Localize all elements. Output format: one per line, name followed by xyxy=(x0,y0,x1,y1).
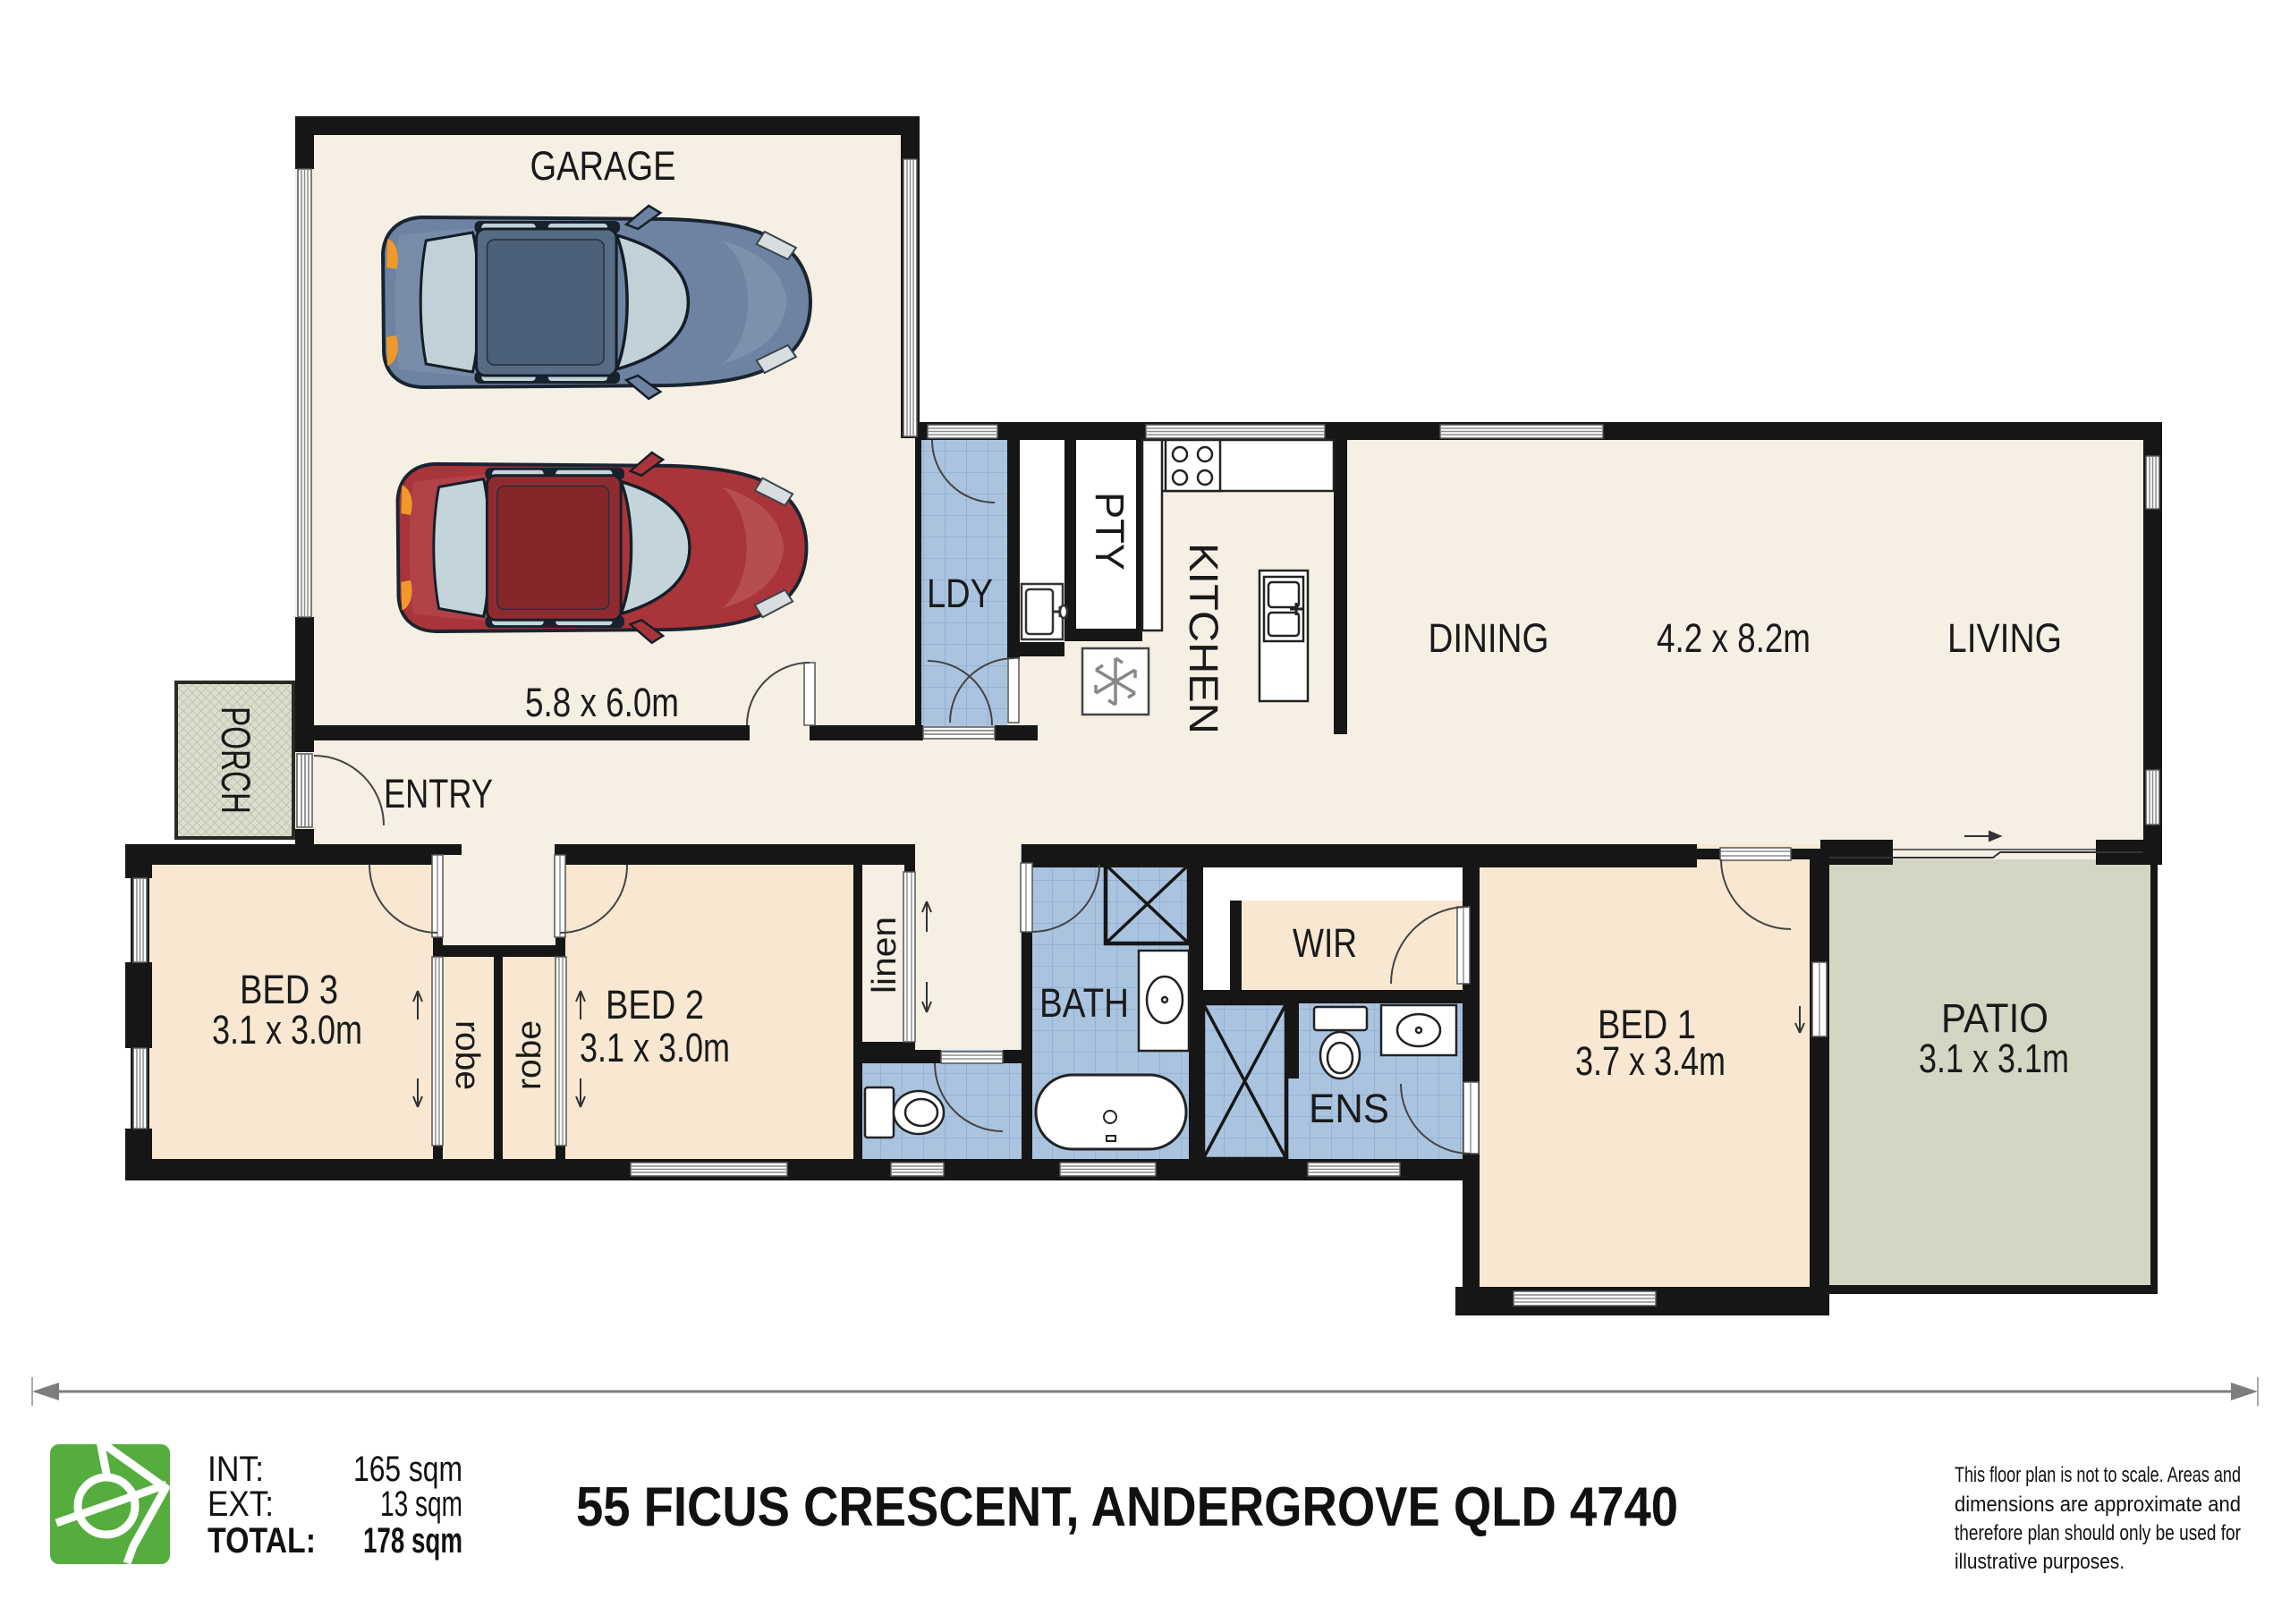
svg-text:LDY: LDY xyxy=(927,571,993,616)
svg-text:PATIO: PATIO xyxy=(1941,995,2048,1041)
svg-text:BED 3: BED 3 xyxy=(240,967,338,1012)
svg-text:EXT:: EXT: xyxy=(208,1484,274,1524)
svg-text:WIR: WIR xyxy=(1293,920,1357,966)
svg-text:4.2 x 8.2m: 4.2 x 8.2m xyxy=(1657,615,1811,661)
svg-text:DINING: DINING xyxy=(1429,615,1549,661)
svg-text:ENS: ENS xyxy=(1309,1086,1389,1131)
svg-text:5.8 x 6.0m: 5.8 x 6.0m xyxy=(525,680,679,725)
svg-text:3.1 x 3.0m: 3.1 x 3.0m xyxy=(580,1025,730,1070)
svg-text:robe: robe xyxy=(511,1020,548,1090)
svg-text:This floor plan is not to scal: This floor plan is not to scale. Areas a… xyxy=(1955,1463,2241,1487)
svg-text:BATH: BATH xyxy=(1039,980,1129,1026)
svg-text:PORCH: PORCH xyxy=(213,706,259,814)
svg-text:3.1 x 3.1m: 3.1 x 3.1m xyxy=(1919,1036,2069,1081)
svg-text:TOTAL:: TOTAL: xyxy=(208,1521,316,1561)
svg-text:linen: linen xyxy=(866,917,903,994)
svg-text:178 sqm: 178 sqm xyxy=(363,1521,462,1561)
svg-text:13 sqm: 13 sqm xyxy=(380,1484,462,1524)
svg-text:55 FICUS CRESCENT, ANDERGROVE: 55 FICUS CRESCENT, ANDERGROVE QLD 4740 xyxy=(576,1476,1678,1538)
svg-text:3.1 x 3.0m: 3.1 x 3.0m xyxy=(212,1007,362,1053)
svg-text:INT:: INT: xyxy=(208,1450,264,1489)
svg-text:KITCHEN: KITCHEN xyxy=(1181,543,1226,734)
svg-text:ENTRY: ENTRY xyxy=(384,771,493,816)
svg-text:PTY: PTY xyxy=(1087,492,1132,571)
svg-text:GARAGE: GARAGE xyxy=(530,143,676,189)
svg-text:therefore plan should only be: therefore plan should only be used for xyxy=(1955,1521,2241,1545)
svg-text:LIVING: LIVING xyxy=(1947,615,2062,661)
svg-text:BED 2: BED 2 xyxy=(606,982,704,1028)
svg-text:165 sqm: 165 sqm xyxy=(353,1450,462,1489)
svg-text:dimensions are approximate and: dimensions are approximate and xyxy=(1955,1493,2241,1517)
svg-text:robe: robe xyxy=(448,1020,486,1090)
svg-text:3.7 x 3.4m: 3.7 x 3.4m xyxy=(1575,1038,1726,1084)
svg-text:illustrative purposes.: illustrative purposes. xyxy=(1955,1550,2125,1574)
